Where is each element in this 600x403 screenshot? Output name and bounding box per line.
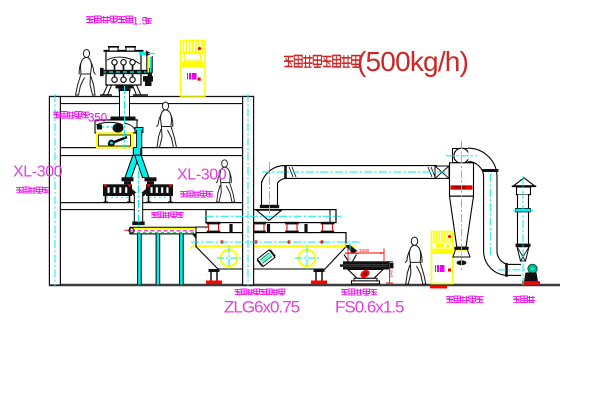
svg-text:P400: P400 <box>455 185 466 190</box>
svg-text:1500: 1500 <box>359 248 370 253</box>
svg-text:545: 545 <box>389 269 394 277</box>
svg-text:XL-300: XL-300 <box>177 167 227 184</box>
svg-text:(500kg/h): (500kg/h) <box>357 46 468 77</box>
svg-text:350: 350 <box>88 113 107 125</box>
svg-text:XL-300: XL-300 <box>13 164 63 181</box>
svg-text:1.5: 1.5 <box>133 16 148 28</box>
svg-text:ZLG6x0.75: ZLG6x0.75 <box>224 298 300 317</box>
svg-text:FS0.6x1.5: FS0.6x1.5 <box>335 298 404 317</box>
